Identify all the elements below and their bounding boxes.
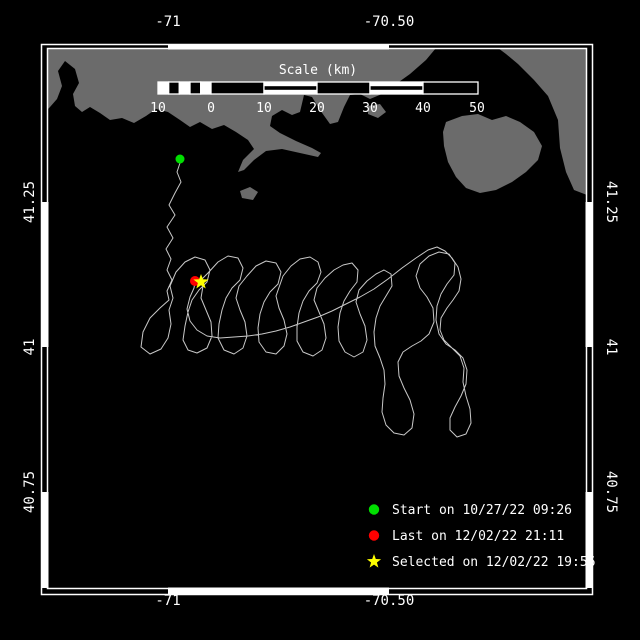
axis-label-left: 41 [22, 339, 38, 356]
legend-item: Start on 10/27/22 09:26 [369, 503, 572, 518]
scale-cell-white [179, 82, 190, 94]
scale-tick-label: 0 [207, 101, 215, 116]
scale-cell-white [158, 82, 169, 94]
scale-tick-label: 20 [309, 101, 325, 116]
scale-tick-label: 50 [469, 101, 485, 116]
legend-start-dot-icon [369, 504, 379, 514]
axis-label-top: -71 [155, 14, 180, 30]
scale-cell-black [211, 82, 264, 94]
scale-cell-black [317, 82, 370, 94]
axis-label-right: 41 [603, 339, 619, 356]
axis-label-bottom: -71 [155, 593, 180, 609]
scale-cell-stripe [371, 86, 423, 90]
start-marker[interactable] [176, 155, 185, 164]
legend-label: Selected on 12/02/22 19:56 [392, 555, 596, 570]
scale-cell-white [201, 82, 211, 94]
scale-tick-label: 10 [150, 101, 166, 116]
legend-item: Last on 12/02/22 21:11 [369, 529, 564, 544]
legend-last-dot-icon [369, 530, 379, 540]
axis-label-right: 41.25 [603, 181, 619, 223]
scale-tick-label: 40 [415, 101, 431, 116]
scale-cell-stripe [265, 86, 317, 90]
axis-label-top: -70.50 [364, 14, 415, 30]
legend: Start on 10/27/22 09:26Last on 12/02/22 … [367, 503, 596, 570]
axis-label-left: 41.25 [22, 181, 38, 223]
axis-label-right: 40.75 [603, 471, 619, 513]
scale-bar-title: Scale (km) [279, 63, 357, 78]
map-canvas[interactable]: Scale (km) 1001020304050 -71-70.50-71-70… [0, 0, 640, 640]
axis-label-left: 40.75 [22, 471, 38, 513]
scale-cell-black [190, 82, 201, 94]
legend-label: Start on 10/27/22 09:26 [392, 503, 572, 518]
scale-cell-black [169, 82, 180, 94]
scale-cell-black [423, 82, 478, 94]
legend-label: Last on 12/02/22 21:11 [392, 529, 564, 544]
scale-tick-label: 30 [362, 101, 378, 116]
scale-tick-label: 10 [256, 101, 272, 116]
axis-label-bottom: -70.50 [364, 593, 415, 609]
legend-item: Selected on 12/02/22 19:56 [367, 554, 596, 570]
